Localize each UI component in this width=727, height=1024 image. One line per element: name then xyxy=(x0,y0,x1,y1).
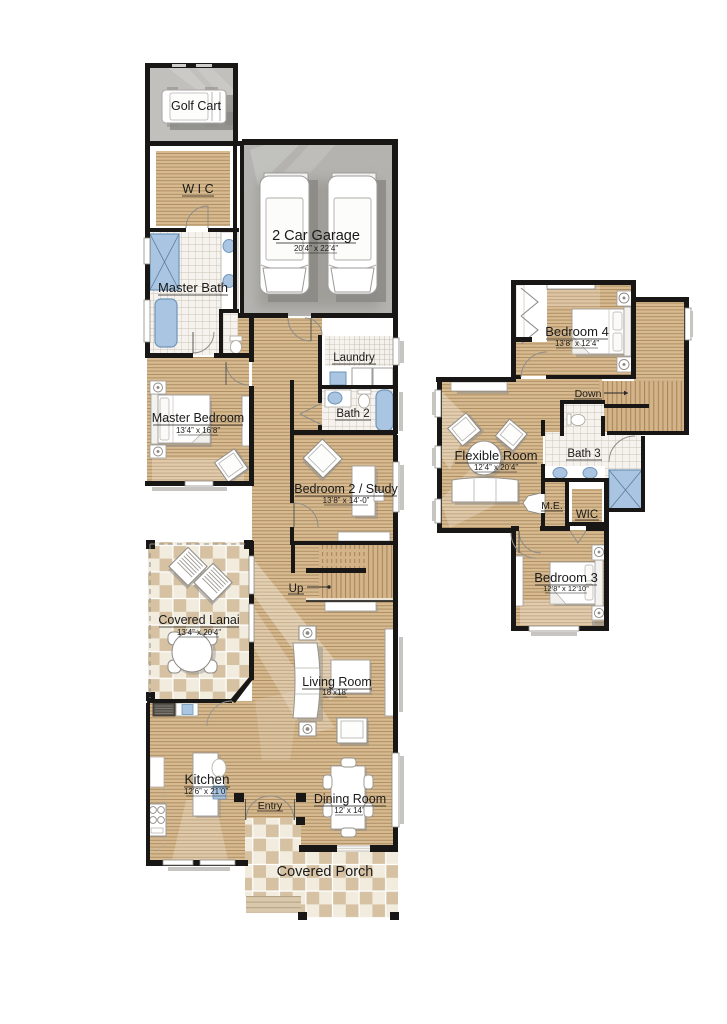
svg-text:2 Car Garage: 2 Car Garage xyxy=(272,228,360,244)
svg-text:Bedroom 4: Bedroom 4 xyxy=(545,324,609,339)
svg-text:13’8” x 14’-0”: 13’8” x 14’-0” xyxy=(323,496,370,505)
svg-text:Up: Up xyxy=(289,583,304,595)
svg-text:Down: Down xyxy=(575,388,602,400)
svg-text:12’4” x 20’4”: 12’4” x 20’4” xyxy=(474,463,518,472)
svg-text:Laundry: Laundry xyxy=(333,352,375,364)
svg-text:Kitchen: Kitchen xyxy=(184,772,229,787)
svg-text:Bedroom 3: Bedroom 3 xyxy=(534,570,598,585)
svg-text:13’8” x 12’4”: 13’8” x 12’4” xyxy=(555,339,599,348)
svg-text:12’ x 14’: 12’ x 14’ xyxy=(334,806,364,815)
svg-text:12’6” x 21’0”: 12’6” x 21’0” xyxy=(184,787,228,796)
svg-text:M.E.: M.E. xyxy=(541,500,563,512)
svg-text:Entry: Entry xyxy=(258,800,283,812)
svg-text:Living Room: Living Room xyxy=(302,675,371,689)
svg-text:WIC: WIC xyxy=(576,509,598,521)
svg-text:Covered Lanai: Covered Lanai xyxy=(158,613,239,627)
svg-text:Dining Room: Dining Room xyxy=(314,792,386,806)
svg-text:18’x18’: 18’x18’ xyxy=(322,688,348,697)
svg-text:Master Bath: Master Bath xyxy=(158,280,228,295)
svg-text:20’4” x 22’4”: 20’4” x 22’4” xyxy=(294,244,338,253)
svg-text:13’4” x 20’4”: 13’4” x 20’4” xyxy=(177,628,221,637)
svg-text:Master Bedroom: Master Bedroom xyxy=(152,411,244,425)
svg-text:12’8” x 12’10”: 12’8” x 12’10” xyxy=(543,584,589,593)
svg-text:Bath 2: Bath 2 xyxy=(336,408,369,420)
svg-text:Bedroom 2 / Study: Bedroom 2 / Study xyxy=(294,482,398,496)
svg-text:13’4” x 16’8”: 13’4” x 16’8” xyxy=(176,426,220,435)
svg-text:Covered Porch: Covered Porch xyxy=(277,864,374,880)
svg-text:W I C: W I C xyxy=(182,182,213,196)
svg-text:Flexible Room: Flexible Room xyxy=(454,448,537,463)
svg-text:Golf Cart: Golf Cart xyxy=(171,99,222,113)
svg-text:Bath 3: Bath 3 xyxy=(567,448,600,460)
